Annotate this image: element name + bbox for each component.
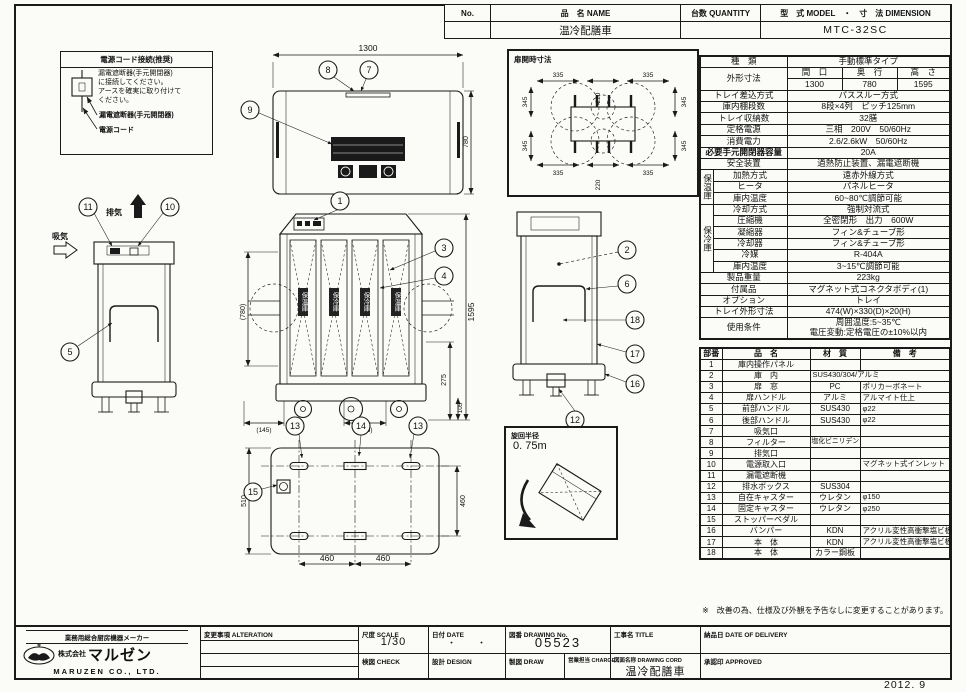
turning-diagram [506,454,616,538]
parts-row: 6後部ハンドルSUS430φ22 [700,415,950,426]
spec-row: トレイ差込方式パススルー方式 [700,90,950,101]
intake-arrow-icon [54,242,77,258]
door-label-3: 保冷庫 [360,288,370,316]
svg-text:335: 335 [643,170,654,177]
svg-text:(780): (780) [240,304,247,320]
door-label-2: 保冷庫 [329,288,339,316]
svg-text:335: 335 [553,170,564,177]
scale-cell: 尺度 SCALE 1/30 検図 CHECK [358,627,428,678]
svg-text:6: 6 [624,279,629,289]
filter-area [331,137,405,161]
spec-row: 庫内棚段数8段×4列 ピッチ125mm [700,102,950,113]
left-handle [276,122,279,158]
svg-text:3: 3 [441,243,446,253]
power-cord-note: 電源コード接続(推奨) 漏電遮断器(手元開閉器) に接続してください。 アースを… [60,51,213,155]
svg-text:780: 780 [463,136,470,148]
spec-row: 凝縮器フィン&チューブ形 [700,227,950,238]
draw-subcell: 製図 DRAW [506,654,564,678]
balloon-2: 2 [618,241,636,259]
drawing-sheet: No. 品 名 NAME 台数 QUANTITY 型 式 MODEL ・ 寸 法… [0,0,966,692]
cart-front-outline [248,214,454,421]
drawing-name-cell: 工事名 TITLE 図面名称 DRAWING CORD 温冷配膳車 [610,627,700,678]
balloon-13: 13 [286,417,304,435]
model-label: 型 式 MODEL ・ 寸 法 DIMENSION [761,5,951,22]
svg-text:345: 345 [681,140,688,151]
intake-label: 吸気 [52,231,68,241]
cart-right-outline [513,212,605,396]
spec-row: 圧縮機全密閉形 出力 600W [700,215,950,226]
company-name: マルゼン [88,644,152,665]
svg-text:460: 460 [376,553,390,563]
approved-label: 承認印 APPROVED [704,656,762,666]
bottom-view: 510 460 460 460 13 14 13 15 [233,414,467,572]
drawing-no-cell: 図番 DRAWING No. 05523 製図 DRAW 営業担当 CHARGE [505,627,610,678]
balloon-17: 17 [626,345,644,363]
power-inlet [130,248,138,255]
right-side-view: 2 6 18 17 16 12 [487,192,665,432]
svg-text:345: 345 [522,96,529,107]
top-view: 1300 780 8 7 9 [228,38,476,200]
balloon-6: 6 [618,275,636,293]
svg-text:220: 220 [595,92,602,103]
front-handle [110,306,158,342]
svg-text:335: 335 [643,72,654,79]
parts-row: 13自在キャスターウレタンφ150 [700,492,950,503]
spec-row: 製品重量223kg [700,272,950,283]
parts-row: 12排水ボックスSUS304 [700,481,950,492]
balloon-16: 16 [626,375,644,393]
spec-row: 冷媒R-404A [700,250,950,261]
spec-row: トレイ収納数32膳 [700,113,950,124]
balloon-11: 11 [79,198,97,216]
parts-row: 18本 体カラー鋼板 [700,548,950,559]
balloon-7: 7 [360,61,378,79]
spec-table: 種 類手動標準タイプ 外形寸法間 口奥 行高 さ 13007801595 トレイ… [699,55,951,340]
drawing-name-value: 温冷配膳車 [611,663,700,679]
model-value: MTC-32SC [761,22,951,39]
svg-text:11: 11 [83,202,92,212]
svg-text:18: 18 [630,315,640,325]
spec-row: ヒータパネルヒータ [700,181,950,192]
spec-row: トレイ外形寸法474(W)×330(D)×20(H) [700,307,950,318]
svg-text:13: 13 [290,421,300,431]
parts-table: 部番品 名材 質備 考 1庫内操作パネル 2庫 内SUS430/304/アルミ … [699,347,951,560]
left-handle-swing [250,284,298,332]
balloon-4: 4 [435,267,453,285]
qty-label: 台数 QUANTITY [681,5,761,22]
charge-label: 営業担当 CHARGE [568,656,615,664]
svg-text:335: 335 [553,72,564,79]
svg-text:10: 10 [165,202,175,212]
svg-text:13: 13 [413,421,423,431]
maker-tagline: 業務用総合厨房機器メーカー [26,630,188,644]
delivery-label: 納品日 DATE OF DELIVERY [704,629,787,639]
header-value-row: 温冷配膳車 MTC-32SC [445,22,951,39]
parts-row: 4扉ハンドルアルミアルマイト仕上 [700,392,950,403]
base-frame [513,364,605,380]
company-prefix: 株式会社 [58,649,86,659]
check-label: 検図 CHECK [362,656,400,666]
balloon-18: 18 [626,311,644,329]
door-open-box: 扉開時寸法 335 220 335 345 345 [507,49,699,197]
cart-top-outline [273,91,463,194]
spec-row: 安全装置過熱防止装置、漏電遮断機 [700,159,950,170]
condenser [359,165,377,178]
header-label-row: No. 品 名 NAME 台数 QUANTITY 型 式 MODEL ・ 寸 法… [445,5,951,22]
breaker-unit [110,248,120,254]
delivery-cell: 納品日 DATE OF DELIVERY 承認印 APPROVED [700,627,952,678]
bottom-dims: 510 460 460 460 [241,448,467,564]
spec-row: 保冷庫冷却方式強制対流式 [700,204,950,215]
exhaust-label: 排気 [106,207,122,217]
spec-row: 冷却器フィン&チューブ形 [700,238,950,249]
top-view-dim-depth: 780 [463,91,474,194]
no-value [445,22,491,39]
cart-bottom-outline [261,440,449,562]
svg-text:220: 220 [595,179,602,190]
exhaust-vent [346,93,390,97]
breaker-label: 漏電遮断器(手元開閉器) [99,110,174,120]
parts-row: 3扉 窓PCポリカーボネート [700,381,950,392]
door-label-4: 保温庫 [391,288,401,316]
svg-text:275: 275 [441,374,448,386]
svg-text:1300: 1300 [359,43,378,53]
charge-subcell: 営業担当 CHARGE [564,654,610,678]
front-view: (780) 1595 275 105 (145) (145) 1 3 4 [228,190,480,434]
date-value: ・ ・ [429,636,505,649]
company-cell: 業務用総合厨房機器メーカー 株式会社 マルゼン MARUZEN CO., LTD… [14,627,200,678]
parts-row: 5前部ハンドルSUS430φ22 [700,403,950,414]
parts-row: 15ストッパーペダル [700,514,950,525]
parts-row: 8フィルター塩化ビニリデン [700,437,950,448]
svg-text:105: 105 [457,402,464,413]
svg-text:15: 15 [248,487,258,497]
name-label: 品 名 NAME [491,5,681,22]
power-note-body: 漏電遮断器(手元開閉器) に接続してください。 アースを確実に取り付けて くださ… [98,69,181,105]
parts-row: 2庫 内SUS430/304/アルミ [700,370,950,381]
maruzen-logo-icon [22,643,56,665]
header-table: No. 品 名 NAME 台数 QUANTITY 型 式 MODEL ・ 寸 法… [444,4,951,39]
spec-row: 庫内温度3~15℃調節可能 [700,261,950,272]
cord-label: 電源コード [99,125,134,135]
base-frame [276,384,426,401]
svg-text:8: 8 [325,65,330,75]
spec-row: 必要手元開閉器容量20A [700,147,950,158]
product-name: 温冷配膳車 [491,22,681,39]
parts-row: 14固定キャスターウレタンφ250 [700,503,950,514]
company-name-en: MARUZEN CO., LTD. [14,667,200,676]
spec-row: 種 類手動標準タイプ [700,56,950,67]
spec-row: 定格電源三相 200V 50/60Hz [700,124,950,135]
turning-radius-value: 0. 75m [513,440,547,452]
parts-row: 9排気口 [700,448,950,459]
no-label: No. [445,5,491,22]
balloon-14: 14 [352,417,370,435]
cart-left-outline [92,242,176,412]
parts-row: 1庫内操作パネル [700,359,950,370]
spec-row: 外形寸法間 口奥 行高 さ [700,67,950,78]
svg-text:2: 2 [624,245,629,255]
spec-row: 使用条件周囲温度:5~35℃ 電圧変動:定格電圧の±10%以内 [700,318,950,339]
balloon-1: 1 [331,192,349,210]
drawing-no-value: 05523 [506,635,610,650]
right-handle-swing [404,284,452,332]
spec-row: オプショントレイ [700,295,950,306]
parts-row: 11漏電遮断機 [700,470,950,481]
balloon-8: 8 [319,61,337,79]
title-block: 業務用総合厨房機器メーカー 株式会社 マルゼン MARUZEN CO., LTD… [14,625,952,678]
spec-row: 付属品マグネット式コネクタボディ(1) [700,284,950,295]
svg-text:9: 9 [247,105,252,115]
left-side-view: 排気 吸気 11 10 5 [50,192,202,420]
svg-text:1595: 1595 [466,302,476,321]
rear-handle [533,286,585,322]
balloon-3: 3 [435,239,453,257]
balloon-10: 10 [161,198,179,216]
parts-header-row: 部番品 名材 質備 考 [700,348,950,359]
title-label: 工事名 TITLE [614,629,653,639]
exhaust-arrow-icon [130,194,146,218]
alteration-label: 変更事項 ALTERATION [204,629,273,639]
parts-row: 10電源取入口マグネット式インレット [700,459,950,470]
door-open-title: 扉開時寸法 [514,54,552,65]
balloon-5: 5 [61,343,79,361]
turning-radius-box: 旋回半径 0. 75m [504,426,618,540]
spec-row: 保温庫加熱方式遠赤外線方式 [700,170,950,181]
company-logo-row: 株式会社 マルゼン [22,643,152,665]
spec-row: 庫内温度60~80℃調節可能 [700,193,950,204]
balloon-13b: 13 [409,417,427,435]
right-handle [457,122,460,158]
date-cell: 日付 DATE ・ ・ 設計 DESIGN [428,627,505,678]
svg-text:460: 460 [320,553,334,563]
svg-text:1: 1 [337,196,342,206]
svg-text:5: 5 [67,347,72,357]
svg-text:14: 14 [356,421,366,431]
door-open-diagram: 335 220 335 345 345 345 345 335 220 335 [509,51,697,195]
svg-text:17: 17 [630,349,640,359]
svg-text:460: 460 [460,495,467,507]
parts-row: 16バンパーKDNアクリル変性高衝撃塩ビ板 [700,526,950,537]
door-label-1: 保温庫 [298,288,308,316]
design-label: 設計 DESIGN [432,656,472,666]
balloon-15: 15 [244,483,262,501]
balloon-9: 9 [241,101,259,119]
svg-text:345: 345 [522,140,529,151]
rotated-cart [539,464,601,520]
spec-row: 消費電力2.6/2.6kW 50/60Hz [700,136,950,147]
svg-text:7: 7 [366,65,371,75]
parts-row: 7吸気口 [700,426,950,437]
scale-value: 1/30 [359,636,428,648]
draw-label: 製図 DRAW [509,656,544,666]
disclaimer-note: ※ 改善の為、仕様及び外観を予告なしに変更することがあります。 [690,605,948,616]
svg-text:345: 345 [681,96,688,107]
svg-text:12: 12 [570,415,580,425]
open-door-stubs [575,95,631,153]
issue-date: 2012. 9 [884,679,926,691]
svg-text:16: 16 [630,379,640,389]
stopper-pedal [277,480,290,493]
alteration-cell: 変更事項 ALTERATION [200,627,358,678]
parts-row: 17本 体KDNアクリル変性高衝撃塩ビ板 [700,537,950,548]
svg-text:4: 4 [441,271,446,281]
qty-value [681,22,761,39]
